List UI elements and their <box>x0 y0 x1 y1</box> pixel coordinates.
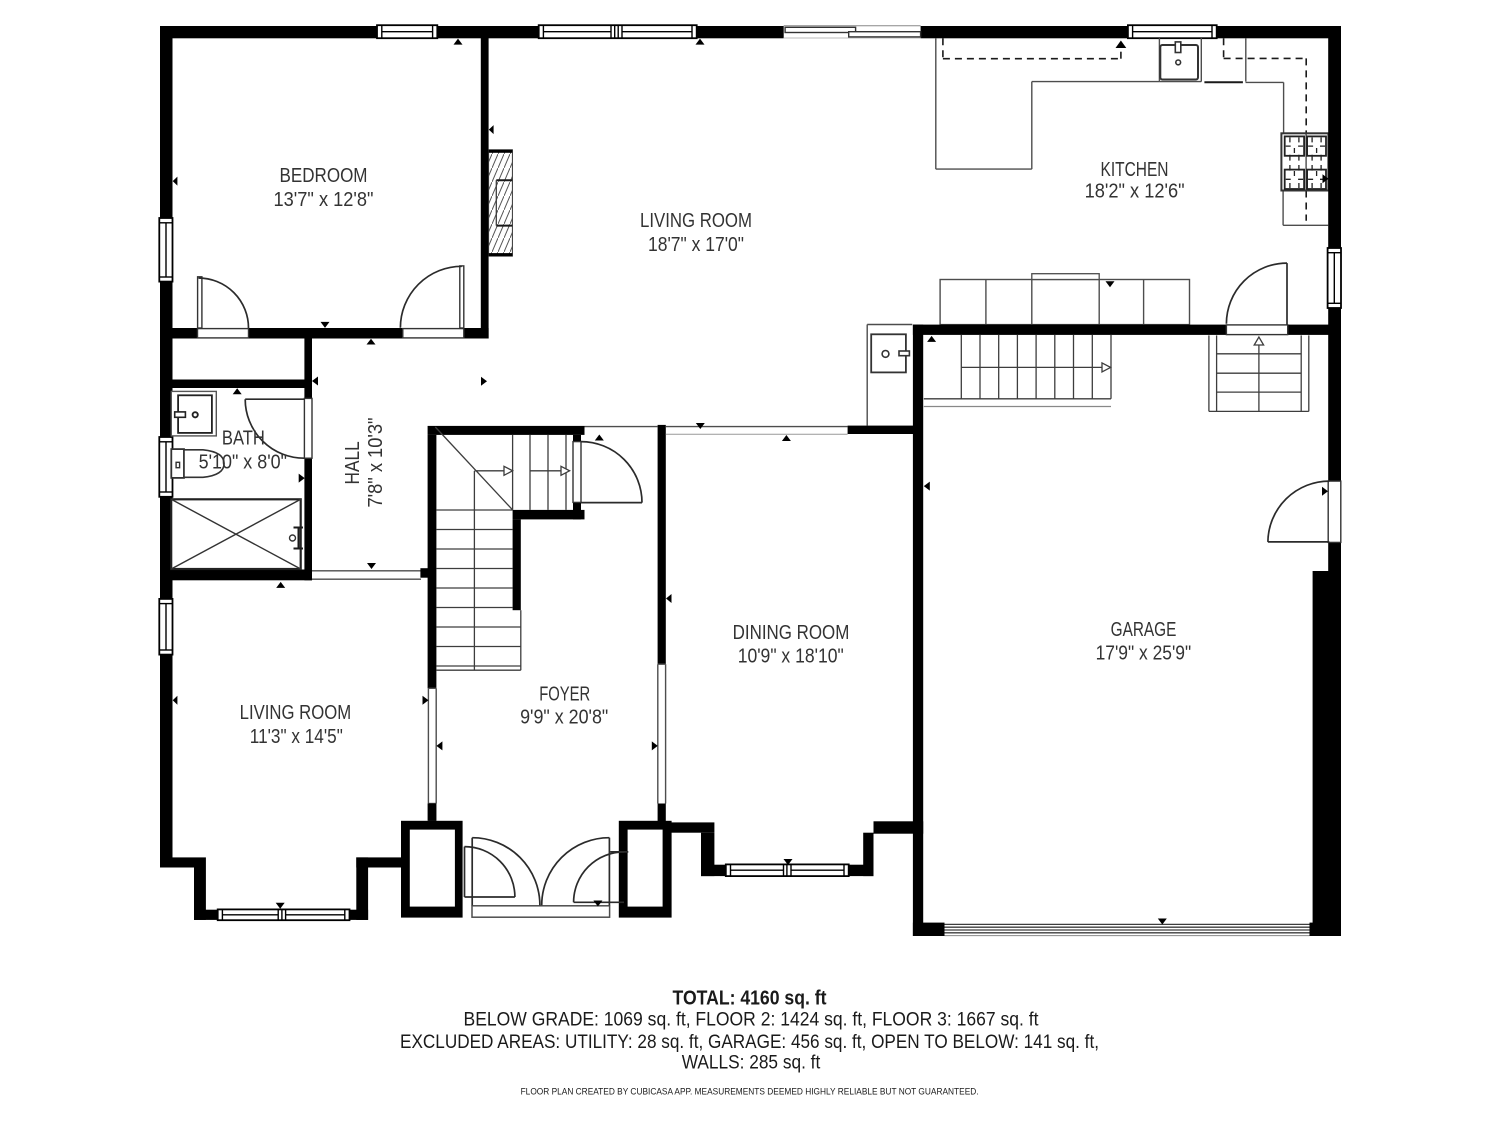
svg-text:11'3" x 14'5": 11'3" x 14'5" <box>250 726 343 748</box>
svg-text:BATH: BATH <box>222 428 265 450</box>
svg-text:DINING ROOM: DINING ROOM <box>733 622 850 644</box>
svg-text:13'7" x 12'8": 13'7" x 12'8" <box>274 189 374 211</box>
svg-text:18'7" x 17'0": 18'7" x 17'0" <box>648 234 744 256</box>
svg-text:BEDROOM: BEDROOM <box>280 165 368 187</box>
svg-text:FOYER: FOYER <box>539 684 590 706</box>
svg-text:WALLS: 285 sq. ft: WALLS: 285 sq. ft <box>682 1053 821 1074</box>
svg-text:HALL: HALL <box>342 441 364 484</box>
svg-text:EXCLUDED AREAS: UTILITY: 28 sq: EXCLUDED AREAS: UTILITY: 28 sq. ft, GARA… <box>400 1032 1099 1053</box>
svg-text:KITCHEN: KITCHEN <box>1101 159 1169 181</box>
svg-text:18'2" x 12'6": 18'2" x 12'6" <box>1085 180 1185 202</box>
svg-text:17'9" x 25'9": 17'9" x 25'9" <box>1096 642 1192 664</box>
svg-text:FLOOR PLAN CREATED BY CUBICASA: FLOOR PLAN CREATED BY CUBICASA APP. MEAS… <box>521 1086 979 1097</box>
svg-text:LIVING ROOM: LIVING ROOM <box>240 702 352 724</box>
svg-text:10'9" x 18'10": 10'9" x 18'10" <box>738 645 844 667</box>
svg-text:GARAGE: GARAGE <box>1111 619 1177 641</box>
svg-text:9'9" x 20'8": 9'9" x 20'8" <box>520 706 608 728</box>
svg-text:5'10" x 8'0": 5'10" x 8'0" <box>199 452 287 474</box>
svg-text:LIVING ROOM: LIVING ROOM <box>640 210 752 232</box>
svg-text:BELOW GRADE: 1069 sq. ft, FLOO: BELOW GRADE: 1069 sq. ft, FLOOR 2: 1424 … <box>464 1010 1040 1031</box>
svg-text:TOTAL: 4160 sq. ft: TOTAL: 4160 sq. ft <box>673 988 827 1010</box>
svg-text:7'8" x 10'3": 7'8" x 10'3" <box>365 418 387 508</box>
